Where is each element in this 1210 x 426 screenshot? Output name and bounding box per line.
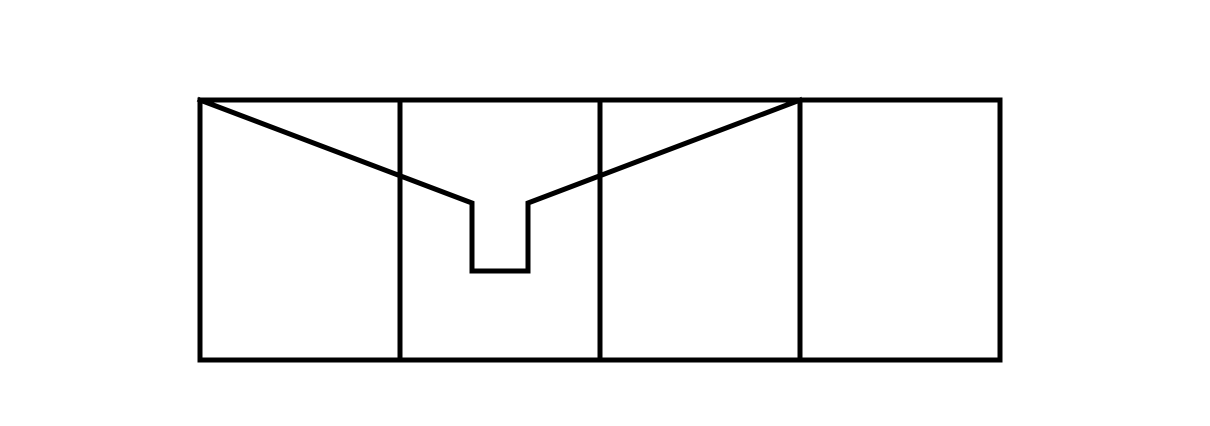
flap-notch-polyline — [200, 100, 800, 271]
line-drawing — [0, 0, 1210, 426]
canvas — [0, 0, 1210, 426]
